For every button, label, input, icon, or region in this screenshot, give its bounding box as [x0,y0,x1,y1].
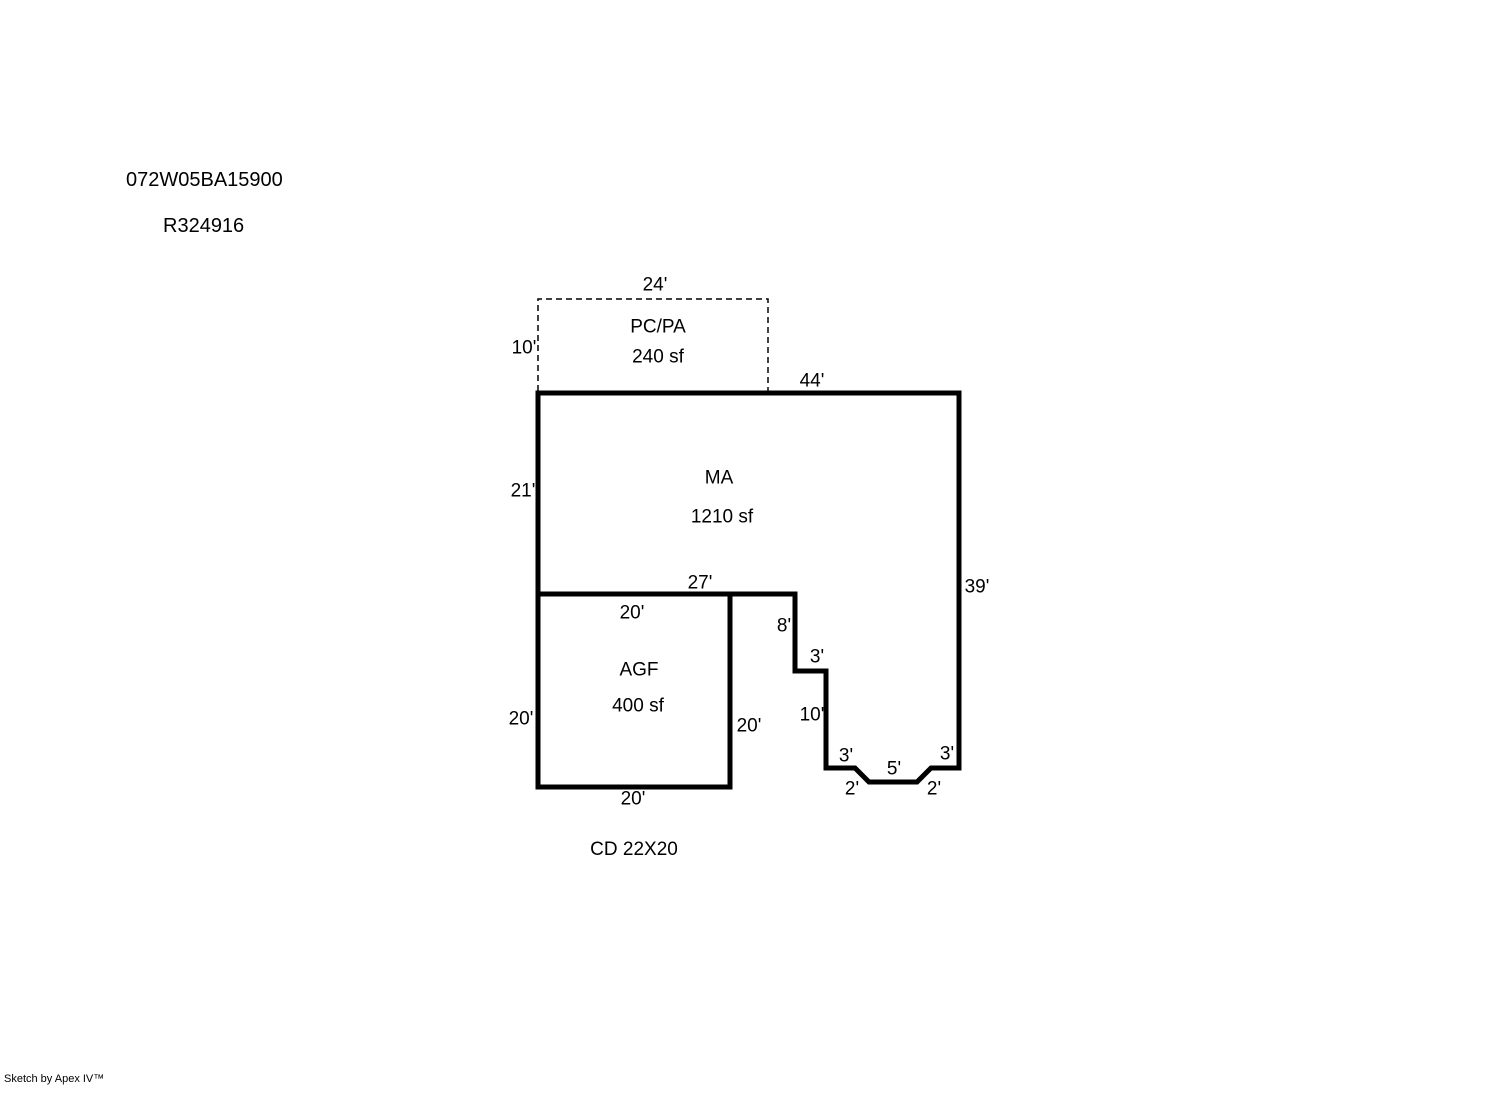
area-ma-label: MA [705,469,734,488]
dim-ma-top: 44' [800,372,825,391]
floorplan-drawing [0,0,1492,1094]
dim-ma-right: 39' [965,578,990,597]
dim-step-3b: 3' [839,747,853,766]
area-agf-label: AGF [619,661,658,680]
sketch-page: 072W05BA15900 R324916 24' 10' PC/PA 240 … [0,0,1492,1094]
dim-pcpa-left: 10' [512,339,537,358]
dim-ma-left: 21' [511,482,536,501]
dim-step-3c: 3' [940,745,954,764]
area-pcpa-label: PC/PA [630,318,686,337]
pcpa-dashed-outline [538,299,768,391]
dim-bay-5: 5' [887,760,901,779]
dim-pcpa-top: 24' [643,276,668,295]
dim-bay-2b: 2' [927,780,941,799]
dim-bay-2a: 2' [845,780,859,799]
cd-note: CD 22X20 [590,839,678,861]
dim-agf-bottom: 20' [621,790,646,809]
dim-agf-top: 20' [620,604,645,623]
dim-agf-left: 20' [509,710,534,729]
dim-ma-bottom: 27' [688,574,713,593]
apex-credit: Sketch by Apex IV™ [4,1073,104,1085]
dim-step-3a: 3' [810,648,824,667]
area-agf-size: 400 sf [612,697,664,716]
dim-agf-right: 20' [737,717,762,736]
area-pcpa-size: 240 sf [632,348,684,367]
dim-step-8: 8' [777,617,791,636]
dim-step-10: 10' [800,706,825,725]
area-ma-size: 1210 sf [691,508,753,527]
